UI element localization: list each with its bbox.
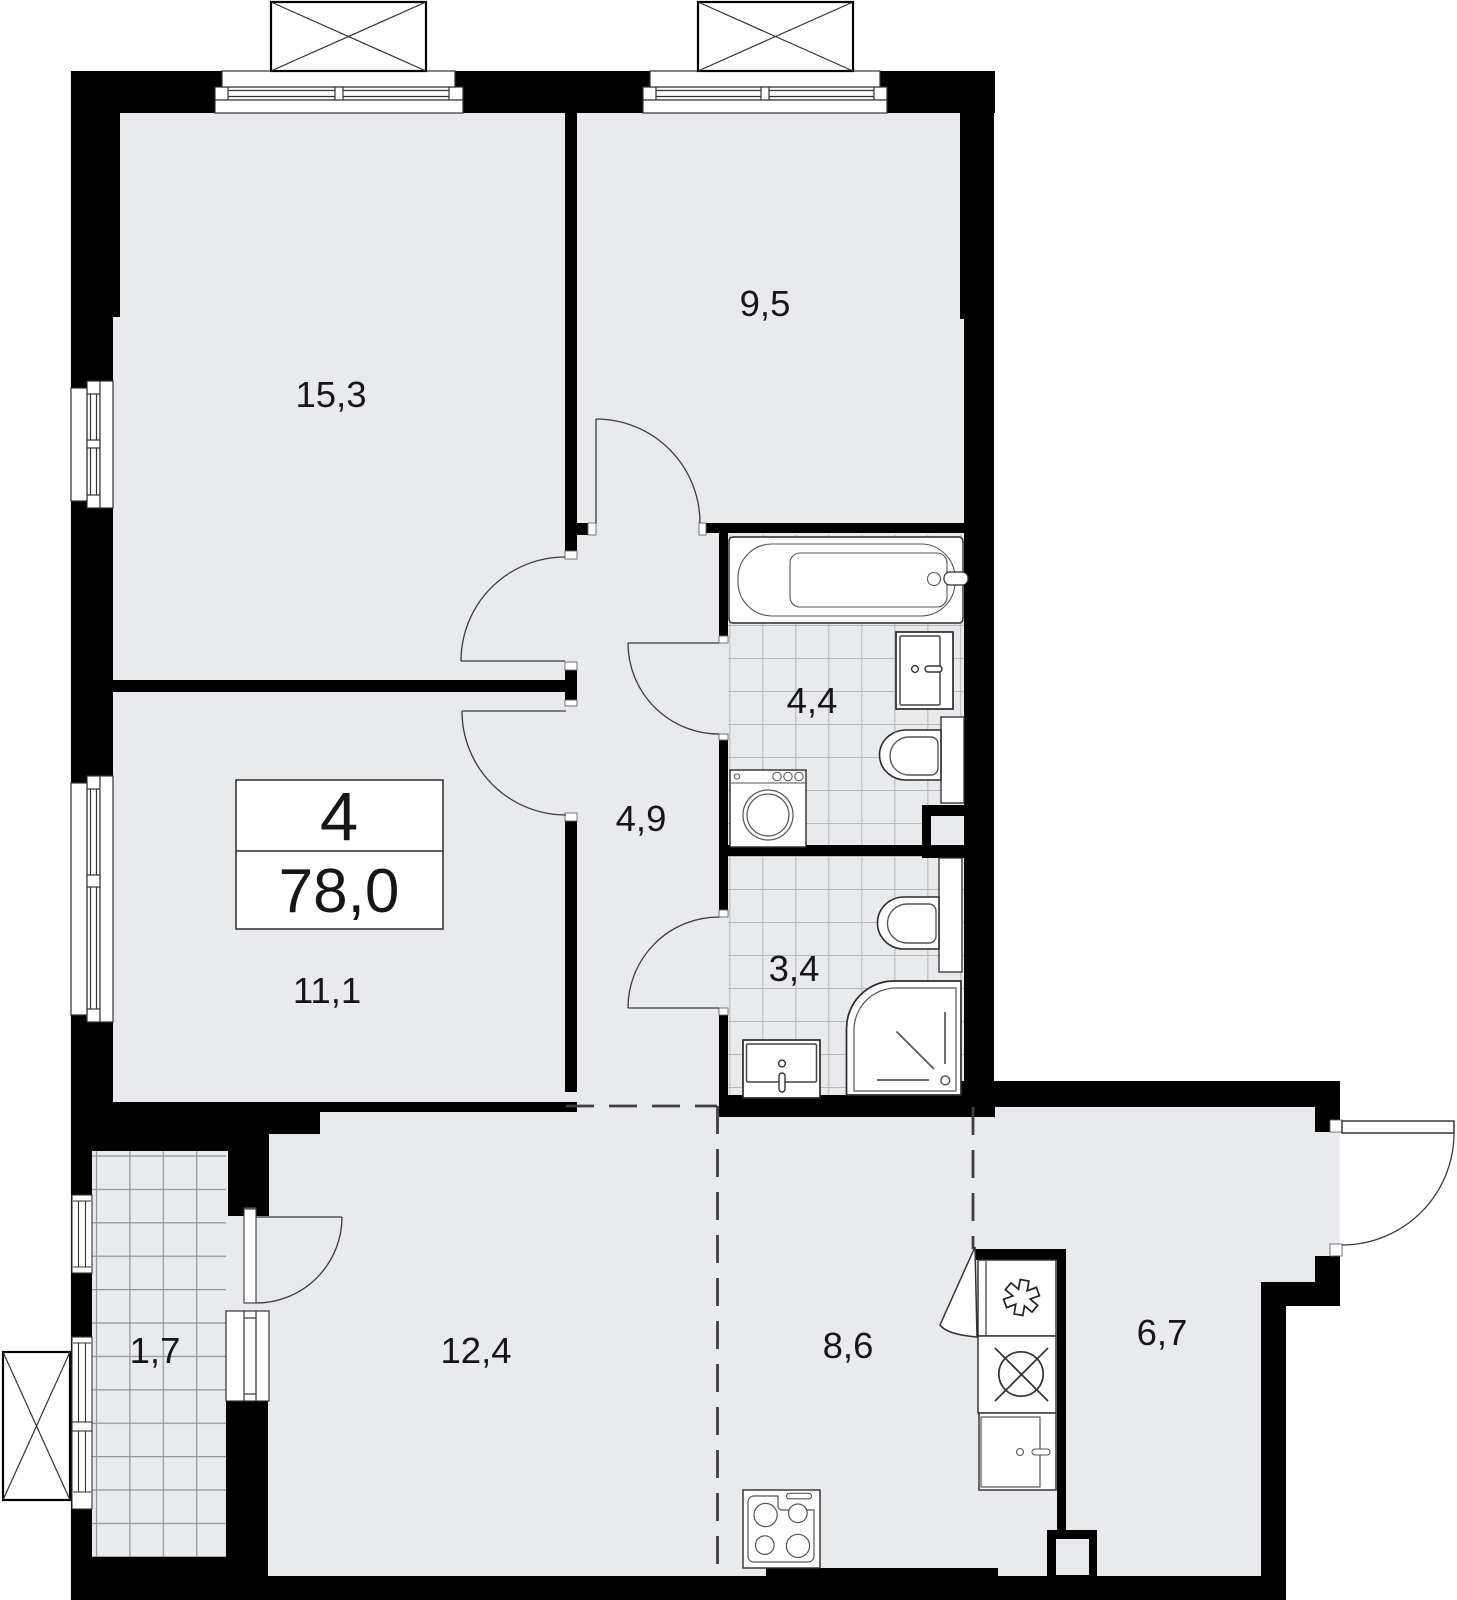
svg-text:9,5: 9,5	[740, 283, 791, 324]
svg-text:1,7: 1,7	[130, 1330, 181, 1371]
svg-text:4,9: 4,9	[616, 798, 667, 839]
svg-text:8,6: 8,6	[823, 1325, 874, 1366]
svg-text:12,4: 12,4	[440, 1330, 511, 1371]
svg-text:11,1: 11,1	[293, 970, 361, 1011]
svg-text:3,4: 3,4	[769, 948, 820, 989]
svg-text:4,4: 4,4	[787, 680, 838, 721]
svg-text:15,3: 15,3	[295, 374, 366, 415]
svg-text:4: 4	[320, 778, 358, 855]
svg-text:6,7: 6,7	[1137, 1312, 1188, 1353]
svg-text:78,0: 78,0	[279, 857, 400, 926]
